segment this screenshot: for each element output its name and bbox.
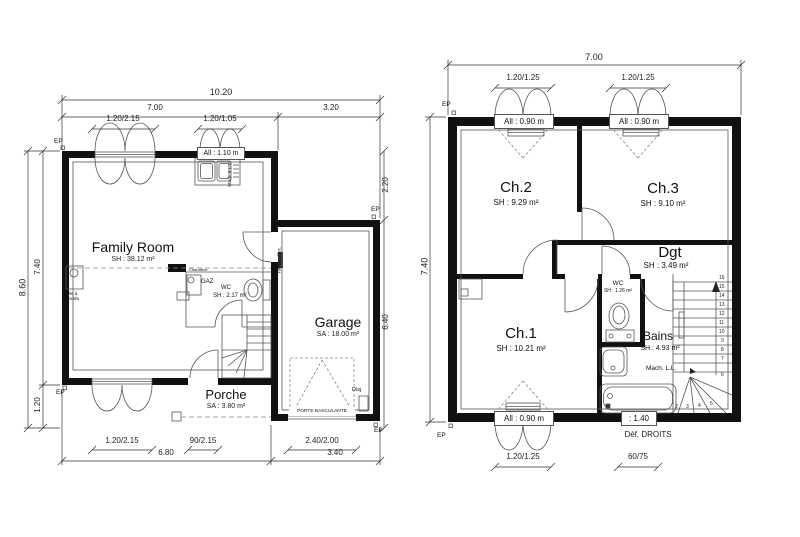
room-wc-ground-area: SH : 2.17 m² (213, 293, 247, 299)
dim-garage-width: 3.20 (323, 104, 339, 112)
stair-number: 8 (721, 348, 724, 353)
dim-upper-total-width: 7.00 (585, 53, 603, 62)
dim-bath-window: 60/75 (628, 453, 648, 461)
room-bains: Bains (643, 330, 673, 342)
stair-number: 14 (719, 294, 725, 299)
stair-number: 9 (721, 339, 724, 344)
gas-label: GAZ (201, 279, 213, 285)
room-bains-area: SH : 4.93 m² (640, 345, 679, 352)
sill-label-ch1: All : 0.90 m (494, 411, 554, 426)
upper-floor-thin-lines (449, 111, 732, 428)
ep-label-upper-bottom-left: EP (437, 433, 446, 440)
room-wc-upper-area: SH : 1.26 m² (604, 289, 632, 294)
ep-label-garage-top: EP (371, 207, 380, 214)
room-wc-upper: WC (613, 281, 624, 288)
room-porch: Porche (205, 388, 246, 401)
room-dgt: Dgt (658, 245, 681, 260)
upper-floor-walls (448, 117, 741, 422)
stair-number: 3 (686, 405, 689, 410)
room-ch3-area: SH : 9.10 m² (641, 200, 686, 208)
room-ch2-area: SH : 9.29 m² (494, 199, 539, 207)
room-ch1: Ch.1 (505, 326, 537, 341)
stair-number: 15 (719, 285, 725, 290)
dim-upper-window-left: 1.20/1.25 (506, 74, 539, 82)
stair-number: 4 (698, 404, 701, 409)
ep-label-top-left: EP (54, 139, 63, 146)
ep-label-garage-bottom: EP (374, 428, 383, 435)
garage-door-type-label: PORTE BASCULANTE (289, 407, 355, 416)
stair-number: 11 (719, 321, 724, 326)
dim-upper-height: 7.40 (420, 258, 429, 276)
room-garage: Garage (315, 315, 362, 329)
dim-garage-height: 6.40 (382, 314, 390, 330)
dim-house-width: 7.00 (147, 104, 163, 112)
room-family-room-area: SH : 38.12 m² (111, 256, 154, 263)
room-dgt-area: SH : 3.49 m² (644, 262, 689, 270)
stair-number: 5 (710, 402, 713, 407)
stair-number: 10 (719, 330, 725, 335)
dim-door-bottom: 1.20/2.15 (105, 437, 138, 445)
dim-window-top: 1.20/1.05 (203, 115, 236, 123)
stair-number: 13 (719, 303, 725, 308)
dim-garage-top-offset: 2.20 (382, 177, 390, 193)
def-droits-label: Déf. DROITS (624, 431, 671, 439)
room-garage-area: SA : 18.00 m² (317, 331, 359, 338)
ep-label-bottom-left: EP (56, 390, 65, 397)
sill-label-left: All : 0.90 m (494, 114, 554, 129)
stair-number: 16 (719, 276, 725, 281)
boiler-label: Chaudière (189, 268, 207, 272)
dim-garage-door: 2.40/2.00 (305, 437, 338, 445)
room-ch1-area: SH : 10.21 m² (496, 345, 545, 353)
dim-total-width: 10.20 (210, 88, 233, 97)
dim-house-bottom: 6.80 (158, 449, 174, 457)
sill-label-kitchen: All : 1.10 m (197, 147, 245, 160)
breaker-label: Disj. (352, 388, 363, 394)
stair-number: 6 (721, 373, 724, 378)
sill-label-right: All : 0.90 m (609, 114, 669, 129)
room-porch-area: SA : 3.80 m² (207, 403, 246, 410)
dim-garage-bottom: 3.40 (327, 449, 343, 457)
room-ch2: Ch.2 (500, 180, 532, 195)
dim-entry-door: 90/2.15 (190, 437, 217, 445)
stair-number: 7 (721, 357, 724, 362)
sill-label-bath: : 1.40 (621, 411, 657, 426)
dim-porch-height: 1.20 (34, 397, 42, 413)
upper-floor-stair-arrow (690, 281, 720, 374)
washing-machine-label: Mach. L.L. (646, 366, 676, 373)
stair-number: 12 (719, 312, 725, 317)
dishwasher-label: Mach. à L.V. (228, 162, 233, 187)
pellet-stove-label: Poêle à granulés (62, 291, 90, 302)
ep-label-upper-top-left: EP (442, 102, 451, 109)
dim-upper-window-right: 1.20/1.25 (621, 74, 654, 82)
floor-plan-drawing: 10.20 7.00 3.20 1.20/2.15 1.20/1.05 All … (0, 0, 800, 537)
electrical-panel-label: Tableau Elec. (277, 247, 282, 274)
dim-door-top: 1.20/2.15 (106, 115, 139, 123)
room-wc-ground: WC (221, 285, 231, 291)
dim-ch1-window: 1.20/1.25 (506, 453, 539, 461)
room-ch3: Ch.3 (647, 181, 679, 196)
stair-number: 2 (675, 405, 678, 410)
room-family-room: Family Room (92, 240, 174, 254)
dim-height-house: 7.40 (34, 259, 42, 275)
dim-height-total: 8.60 (18, 279, 27, 297)
